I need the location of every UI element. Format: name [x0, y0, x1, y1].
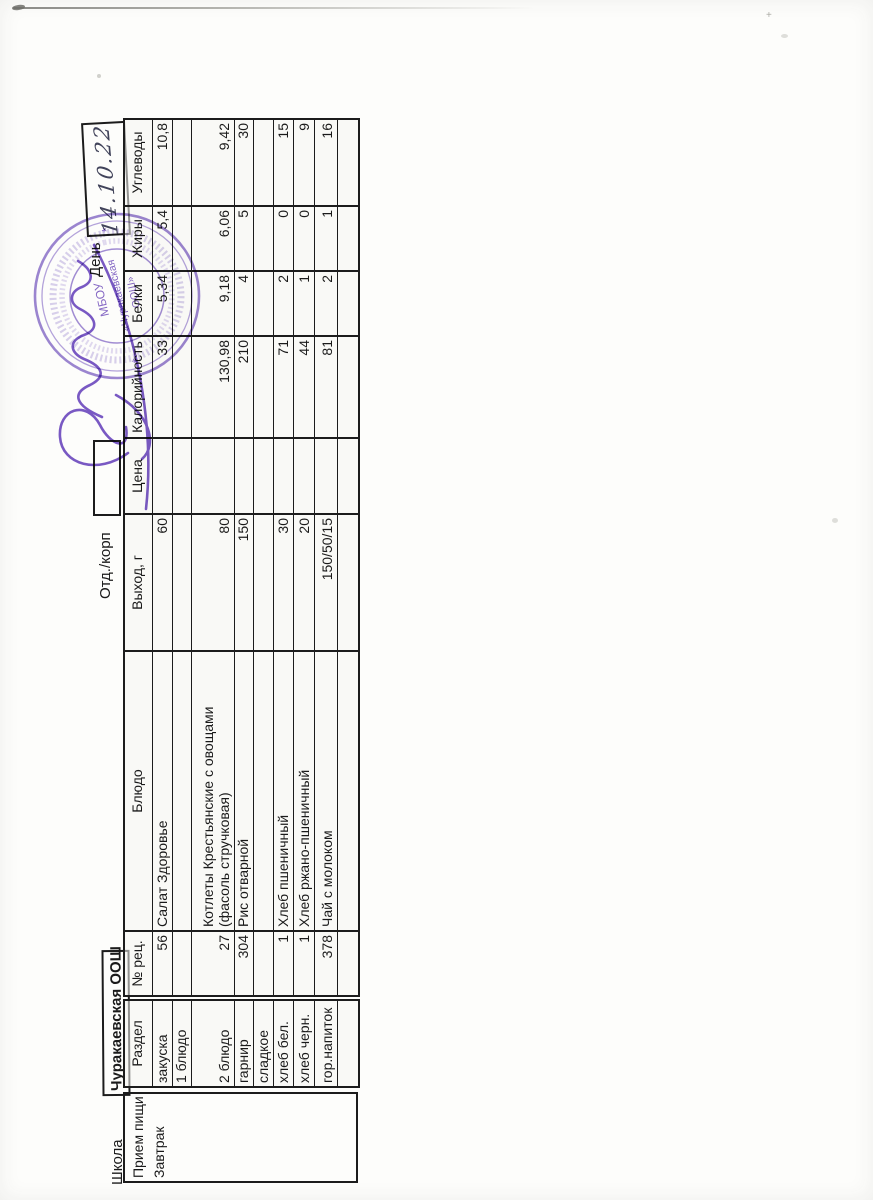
table-row: 1 Хлеб ржано-пшеничный 20 44 1 0 9 [293, 119, 314, 996]
fat-cell [253, 206, 273, 271]
table-row: 378 Чай с молоком 150/50/15 81 2 1 16 [314, 119, 337, 996]
kcal-cell: 71 [273, 336, 293, 438]
out-cell [172, 514, 191, 651]
fat-cell: 0 [273, 206, 293, 271]
rec-cell: 304 [234, 931, 253, 996]
dust-speck [832, 518, 838, 523]
table-row [253, 119, 273, 996]
fat-cell: 1 [314, 206, 337, 271]
dish-cell: Рис отварной [234, 651, 253, 931]
razdel-cell [337, 1000, 359, 1087]
meal-section: Прием пищи Завтрак [123, 1092, 358, 1183]
protein-cell: 2 [314, 271, 337, 336]
carbs-cell: 9,42 [191, 119, 234, 206]
price-cell [172, 438, 191, 514]
table-row [337, 119, 359, 996]
dish-cell: Чай с молоком [314, 651, 337, 931]
price-cell [253, 438, 273, 514]
rec-cell: 378 [314, 931, 337, 996]
fat-cell: 0 [293, 206, 314, 271]
rec-cell: 1 [293, 931, 314, 996]
dust-speck: + [766, 11, 775, 20]
out-cell: 150 [234, 514, 253, 651]
kcal-cell: 81 [314, 336, 337, 438]
rec-cell [172, 931, 191, 996]
meal-value: Завтрак [149, 1094, 170, 1178]
table-row: 1 Хлеб пшеничный 30 71 2 0 15 [273, 119, 293, 996]
dish-cell [337, 651, 359, 931]
dish-cell: Салат Здоровье [152, 651, 172, 931]
carbs-cell: 10,8 [152, 119, 172, 206]
out-cell: 20 [293, 514, 314, 651]
razdel-header: Раздел [124, 1000, 152, 1087]
out-cell: 150/50/15 [314, 514, 337, 651]
rec-cell: 1 [273, 931, 293, 996]
razdel-cell: гор.напиток [314, 1000, 337, 1087]
out-cell: 30 [273, 514, 293, 651]
dish-cell [172, 651, 191, 931]
dish-cell [253, 651, 273, 931]
meal-header: Прием пищи [128, 1094, 149, 1178]
kcal-cell [253, 336, 273, 438]
dish-header: Блюдо [124, 651, 152, 931]
rec-header: № рец. [124, 931, 152, 996]
razdel-cell: хлеб бел. [273, 1000, 293, 1087]
table-row: 304 Рис отварной 150 210 4 5 30 [234, 119, 253, 996]
out-cell: 80 [191, 514, 234, 651]
protein-cell [337, 271, 359, 336]
rec-cell: 56 [152, 931, 172, 996]
razdel-cell: 1 блюдо [172, 1000, 191, 1087]
price-cell [273, 438, 293, 514]
protein-cell: 1 [293, 271, 314, 336]
signature [46, 215, 164, 545]
kcal-cell: 44 [293, 336, 314, 438]
dish-cell: Хлеб пшеничный [273, 651, 293, 931]
rec-cell [253, 931, 273, 996]
razdel-cell: закуска [152, 1000, 172, 1087]
rec-cell [337, 931, 359, 996]
carbs-cell [172, 119, 191, 206]
protein-cell: 4 [234, 271, 253, 336]
carbs-cell [253, 119, 273, 206]
razdel-table: Раздел закуска 1 блюдо 2 блюдо гарнир сл… [123, 999, 360, 1088]
scanned-document-page: Школа Чуракаевская ООШ Отд./корп День 14… [0, 0, 873, 1200]
carbs-cell: 16 [314, 119, 337, 206]
dish-cell: Котлеты Крестьянские с овощами (фасоль с… [191, 651, 234, 931]
rotated-page-content: Школа Чуракаевская ООШ Отд./корп День 14… [0, 0, 873, 1200]
kcal-cell: 210 [234, 336, 253, 438]
razdel-cell: сладкое [253, 1000, 273, 1087]
dish-cell: Хлеб ржано-пшеничный [293, 651, 314, 931]
dust-speck [781, 34, 788, 38]
price-cell [191, 438, 234, 514]
carbs-header: Углеводы [124, 119, 152, 206]
razdel-cell: хлеб черн. [293, 1000, 314, 1087]
carbs-cell: 30 [234, 119, 253, 206]
carbs-cell [337, 119, 359, 206]
razdel-cell: 2 блюдо [191, 1000, 234, 1087]
out-cell [253, 514, 273, 651]
price-cell [293, 438, 314, 514]
rec-cell: 27 [191, 931, 234, 996]
fat-cell [337, 206, 359, 271]
out-cell [337, 514, 359, 651]
protein-cell: 2 [273, 271, 293, 336]
fat-cell: 5 [234, 206, 253, 271]
razdel-cell: гарнир [234, 1000, 253, 1087]
carbs-cell: 9 [293, 119, 314, 206]
price-cell [234, 438, 253, 514]
protein-cell [253, 271, 273, 336]
dust-speck [97, 74, 101, 78]
price-cell [314, 438, 337, 514]
kcal-cell [337, 336, 359, 438]
carbs-cell: 15 [273, 119, 293, 206]
scan-edge-line [13, 7, 533, 9]
price-cell [337, 438, 359, 514]
